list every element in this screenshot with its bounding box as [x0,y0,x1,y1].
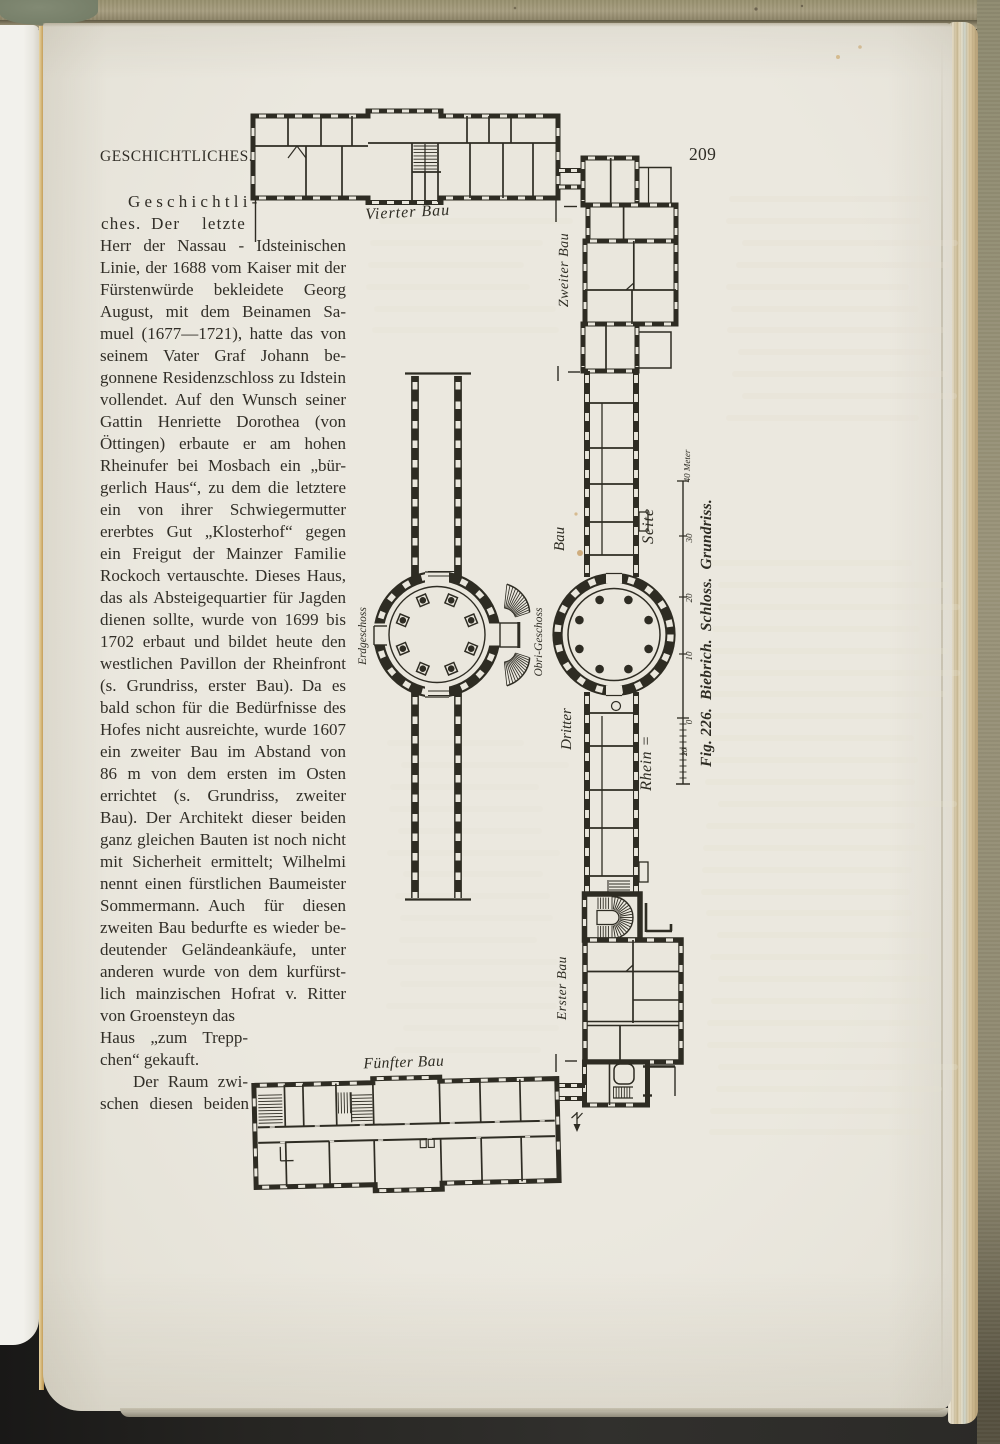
svg-text:Vierter Bau: Vierter Bau [365,202,451,223]
svg-text:Bau: Bau [552,527,568,551]
svg-text:10: 10 [684,651,694,661]
svg-text:Dritter: Dritter [559,708,575,751]
svg-text:0: 0 [684,719,694,724]
svg-text:Rhein =: Rhein = [638,735,655,792]
svg-text:40 Meter: 40 Meter [682,449,692,482]
svg-text:Fig. 226. Biebrich. Schloss. G: Fig. 226. Biebrich. Schloss. Grundriss. [698,499,715,768]
svg-text:Zweiter Bau: Zweiter Bau [557,233,572,307]
svg-text:30: 30 [684,533,694,544]
svg-text:Fünfter Bau: Fünfter Bau [362,1053,444,1073]
svg-text:Erster Bau: Erster Bau [554,956,569,1021]
svg-text:Seite: Seite [640,508,657,544]
svg-text:Erdgeschoss: Erdgeschoss [357,607,369,666]
svg-text:20: 20 [680,748,689,756]
svg-text:20: 20 [684,593,694,603]
svg-text:Obri-Geschoss: Obri-Geschoss [533,607,545,677]
